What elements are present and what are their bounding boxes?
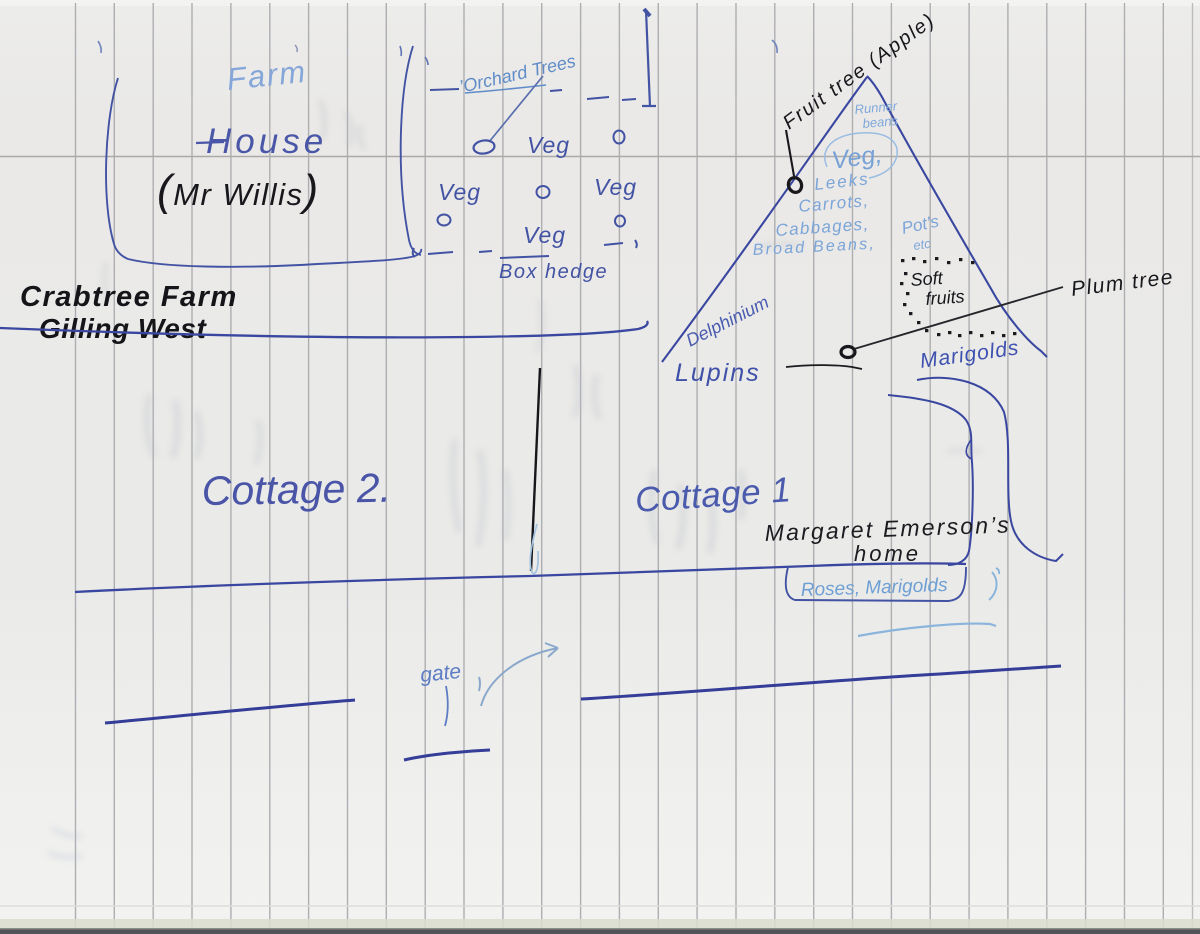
- svg-text:gate: gate: [419, 660, 462, 687]
- svg-text:Veg: Veg: [594, 174, 637, 200]
- svg-text:etc: etc: [912, 236, 932, 253]
- svg-text:Cottage 2.: Cottage 2.: [201, 465, 391, 514]
- svg-text:Lupins: Lupins: [675, 359, 761, 387]
- svg-text:home: home: [854, 541, 921, 566]
- svg-text:House: House: [206, 122, 327, 161]
- svg-text:fruits: fruits: [925, 286, 965, 309]
- svg-text:Veg: Veg: [527, 132, 570, 158]
- svg-text:Veg: Veg: [438, 179, 481, 205]
- svg-text:beans: beans: [862, 113, 899, 131]
- svg-text:Gilling West: Gilling West: [39, 313, 207, 344]
- svg-text:Veg: Veg: [523, 222, 566, 248]
- svg-text:Crabtree Farm: Crabtree Farm: [20, 281, 238, 313]
- svg-text:Box hedge: Box hedge: [499, 261, 608, 283]
- svg-text:Soft: Soft: [910, 268, 944, 290]
